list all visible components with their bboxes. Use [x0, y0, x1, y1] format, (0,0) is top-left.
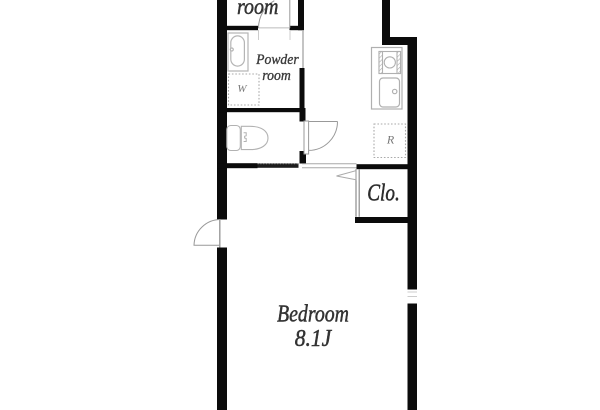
svg-text:room: room — [262, 68, 291, 84]
svg-text:Powder: Powder — [255, 52, 299, 68]
svg-text:R: R — [386, 133, 395, 147]
svg-text:Clo.: Clo. — [367, 181, 400, 207]
svg-text:W: W — [237, 83, 247, 95]
svg-text:room: room — [237, 0, 279, 19]
svg-text:8.1J: 8.1J — [295, 325, 332, 352]
svg-text:Bedroom: Bedroom — [277, 301, 349, 328]
